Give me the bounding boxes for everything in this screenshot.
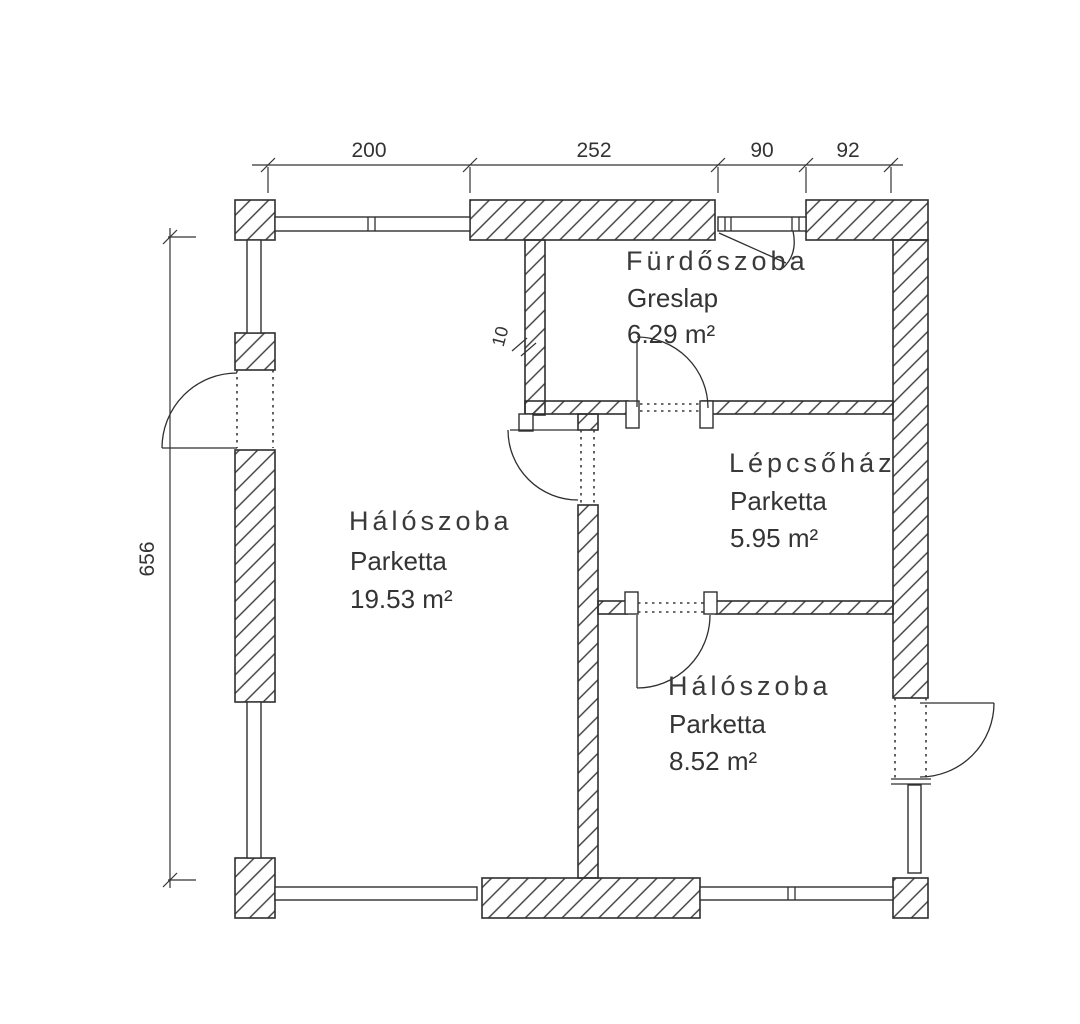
wall-partition-stub <box>578 414 598 430</box>
left-dimension: 656 <box>136 228 196 888</box>
room-name: Fürdőszoba <box>626 246 809 276</box>
wall-corridor-bottom-right <box>716 601 893 614</box>
wall-bathroom-left <box>525 240 545 415</box>
right-exterior-door-arc <box>920 703 994 777</box>
room-floor: Greslap <box>627 283 718 313</box>
window-left-upper <box>247 240 261 333</box>
floor-plan-canvas: 200 252 90 92 656 10 Fürdőszoba Greslap … <box>0 0 1080 1024</box>
wall-left-lower <box>235 450 275 702</box>
room-floor: Parketta <box>730 486 827 516</box>
window-left-lower <box>247 702 261 858</box>
corridor-door-jamb-right <box>704 592 717 614</box>
dimension-label-656: 656 <box>136 541 159 576</box>
room-area: 6.29 m² <box>627 319 715 349</box>
wall-right-upper <box>893 240 928 698</box>
bathroom-door-jamb-right <box>700 401 713 428</box>
window-top-left <box>275 217 470 231</box>
wall-top-middle <box>470 200 715 240</box>
wall-bottom-right-corner <box>893 878 928 918</box>
wall-top-right <box>806 200 928 240</box>
dimension-label-200: 200 <box>351 139 386 162</box>
window-bottom-right <box>700 887 893 900</box>
dimension-label-252: 252 <box>576 139 611 162</box>
wall-bathroom-bottom-right <box>702 401 893 414</box>
floor-plan-drawing: 200 252 90 92 656 10 Fürdőszoba Greslap … <box>0 0 1080 1024</box>
window-right-lower <box>908 785 921 873</box>
room-label-bathroom: Fürdőszoba Greslap 6.29 m² <box>626 246 809 349</box>
room-area: 19.53 m² <box>350 584 453 614</box>
corridor-door-jamb-left <box>625 592 638 614</box>
room-label-bedroom-large: Hálószoba Parketta 19.53 m² <box>349 506 513 614</box>
entry-door-arc <box>162 373 237 448</box>
wall-partition-main <box>578 505 598 878</box>
bedroom-door-jamb <box>519 414 533 431</box>
wall-corridor-bottom-left <box>598 601 627 614</box>
dimension-label-10: 10 <box>488 324 513 349</box>
room-name: Lépcsőház <box>729 448 896 478</box>
room-floor: Parketta <box>669 709 766 739</box>
room-area: 8.52 m² <box>669 746 757 776</box>
wall-bathroom-bottom-left <box>525 401 628 414</box>
room-label-staircase: Lépcsőház Parketta 5.95 m² <box>729 448 896 553</box>
room-floor: Parketta <box>350 546 447 576</box>
room-label-bedroom-small: Hálószoba Parketta 8.52 m² <box>668 671 832 776</box>
room-name: Hálószoba <box>668 671 832 701</box>
door-jambs <box>519 401 717 614</box>
dimension-label-92: 92 <box>836 139 859 162</box>
room-name: Hálószoba <box>349 506 513 536</box>
wall-bottom-left-corner <box>235 858 275 918</box>
room-area: 5.95 m² <box>730 523 818 553</box>
wall-left-pier <box>235 333 275 370</box>
wall-bottom-middle <box>482 878 700 918</box>
bedroom-door-arc <box>508 430 578 500</box>
dimension-label-90: 90 <box>750 139 773 162</box>
top-dimension: 200 252 90 92 <box>252 139 903 193</box>
wall-top-left-corner <box>235 200 275 240</box>
window-bottom-left <box>275 887 477 900</box>
